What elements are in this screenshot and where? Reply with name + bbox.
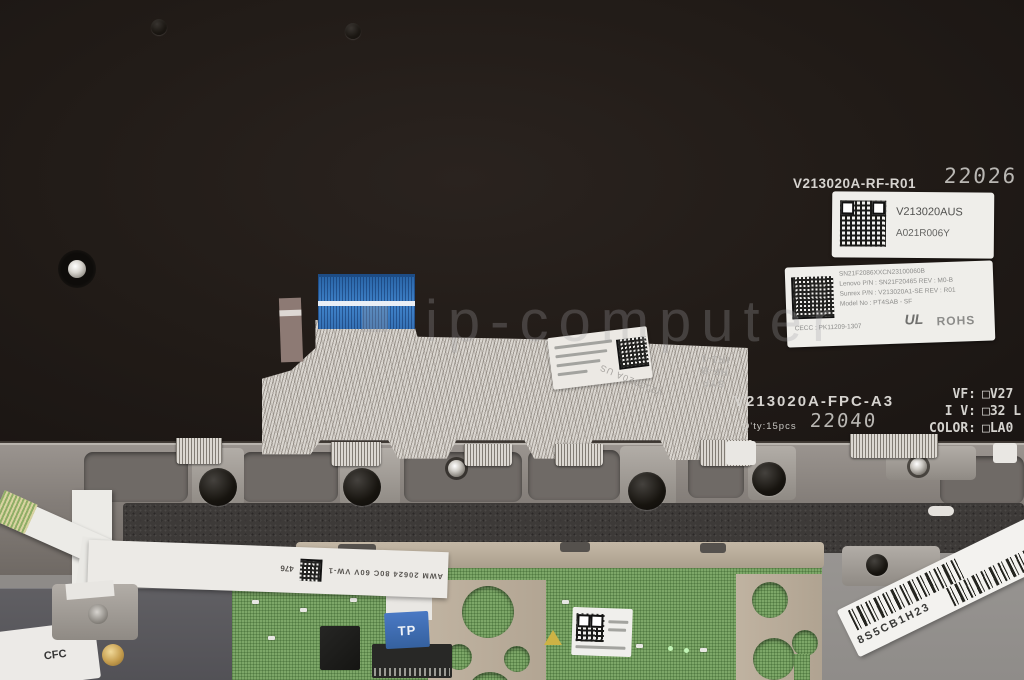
grommet [88, 604, 108, 624]
small-slot [928, 506, 954, 516]
date-stamp: 22040 [809, 410, 878, 432]
smd-component [350, 598, 357, 602]
label-text-line [556, 359, 600, 367]
flex-tail [555, 444, 603, 466]
flex-tail [850, 434, 938, 458]
screw [343, 468, 381, 506]
small-cable [279, 298, 303, 363]
bracket-slot [794, 654, 810, 680]
photo-laptop-palmrest-internal: 8S5CB1H23 TP CFC [0, 0, 1024, 680]
option-list: VF: □V27 I V: □32 L COLOR: □LA0 [916, 386, 1024, 437]
label-text-line [558, 370, 588, 377]
tp-sticker-text: TP [397, 622, 416, 638]
ic-chip [320, 626, 360, 670]
warning-triangle-icon [544, 630, 562, 645]
palmrest-recess [242, 452, 338, 502]
smd-component [636, 644, 643, 648]
option-row: VF: □V27 [916, 386, 1024, 403]
bracket-hole [504, 646, 530, 672]
connector-pins [374, 668, 450, 676]
smd-component [252, 600, 259, 604]
option-label: I V: [916, 403, 976, 420]
bracket-hole [753, 638, 795, 680]
qr-label-pn: V213020AUS [896, 206, 963, 219]
option-value: □32 L [982, 403, 1021, 420]
smd-component [300, 608, 307, 612]
bracket-hole [462, 586, 514, 638]
option-row: COLOR: □LA0 [916, 420, 1024, 437]
screw [448, 460, 465, 477]
flex-tail [464, 444, 512, 466]
cable-marking: AWM 20624 80C 60V VW-1 476 [218, 555, 444, 587]
screw [910, 458, 927, 475]
tp-sticker: TP [384, 611, 430, 649]
screw [628, 472, 666, 510]
bracket-hole [792, 630, 818, 656]
flex-tab [993, 443, 1017, 463]
cable-marking-num: 476 [280, 564, 294, 574]
smd-component [700, 648, 707, 652]
spec-row: Sunrex P/N : V213020A1-SE REV : R01 [840, 287, 956, 299]
screw [68, 260, 86, 278]
cable-stripe [279, 310, 301, 317]
option-row: I V: □32 L [916, 403, 1024, 420]
bracket-hole [752, 582, 788, 618]
option-value: □V27 [982, 386, 1013, 403]
watermark-square [362, 306, 388, 332]
cable-marking-text: AWM 20624 80C 60V VW-1 [327, 567, 443, 582]
ul-mark: UL [904, 311, 923, 328]
flex-tab [726, 441, 756, 465]
corner-label-text: CFC [43, 648, 67, 663]
flex-tail [331, 442, 381, 466]
label-text-line [608, 628, 626, 632]
part-number-text: V213020A-RF-R01 [793, 176, 916, 191]
rohs-mark: ROHS [936, 313, 975, 328]
watermark: ip-computer [425, 288, 841, 355]
flex-tail [176, 438, 222, 464]
screw [866, 554, 888, 576]
pcb-serial-label [571, 607, 633, 657]
datamatrix-icon [299, 559, 322, 582]
led [684, 648, 689, 653]
bracket-notch [560, 542, 590, 552]
qr-code-icon [840, 200, 886, 246]
screw [151, 19, 167, 35]
screw [199, 468, 237, 506]
smd-component [268, 636, 275, 640]
fpc-part-text: V213020A-FPC-A3 [734, 393, 894, 410]
qr-code-icon [576, 613, 605, 642]
fpc-qty-text: Q'ty:15pcs [742, 421, 797, 432]
option-label: COLOR: [916, 420, 976, 437]
spec-row: Model No : PT4SAB - SF [840, 298, 912, 309]
label-text-line [608, 620, 628, 624]
ffc-connector [372, 644, 452, 678]
flex-marking: SYF HF-B IR1-1 [689, 350, 739, 389]
label-text-line [575, 645, 625, 650]
screw [752, 462, 786, 496]
screw [345, 23, 361, 39]
date-stamp: 22026 [943, 164, 1018, 188]
screw [102, 644, 124, 666]
spec-serial: SN21F2086XXCN23100060B [839, 268, 925, 279]
smd-component [562, 600, 569, 604]
qr-part-label: V213020AUS A021R006Y [832, 191, 995, 258]
bracket-notch [700, 543, 726, 553]
option-value: □LA0 [982, 420, 1013, 437]
option-label: VF: [916, 386, 976, 403]
led [668, 646, 673, 651]
qr-label-rev: A021R006Y [896, 228, 950, 239]
